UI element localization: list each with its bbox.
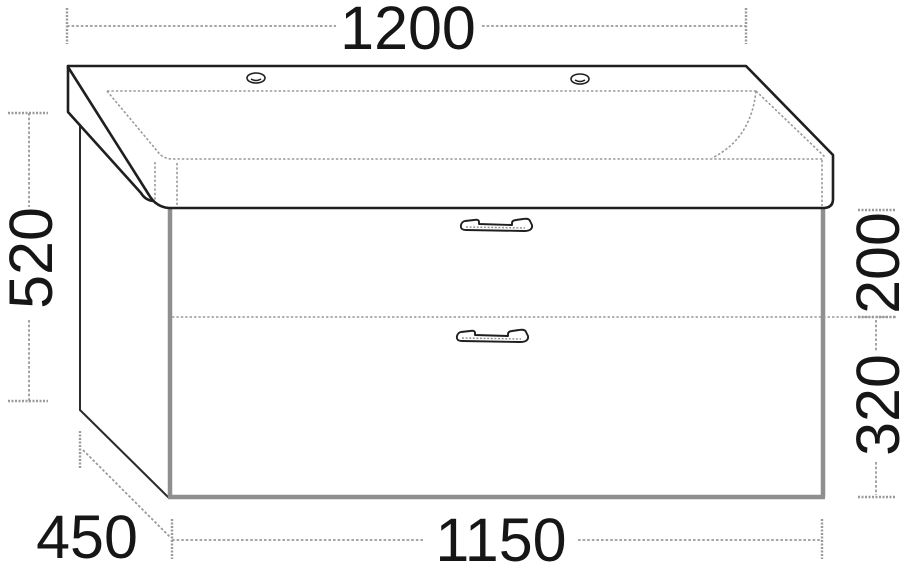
vanity-cabinet — [80, 125, 896, 497]
faucet-hole-icon — [571, 74, 589, 84]
basin-hidden-edges — [155, 160, 822, 206]
technical-drawing: 1200 520 200 320 450 1150 — [0, 0, 918, 580]
basin-outline — [68, 66, 833, 208]
dimension-depth: 450 — [36, 431, 170, 571]
washbasin — [68, 66, 833, 208]
dimension-label-depth: 450 — [36, 503, 138, 571]
basin-bowl-curve — [712, 91, 756, 158]
drawer-handle-icon — [461, 219, 532, 231]
dimension-label-bottom-drawer-height: 320 — [844, 354, 912, 456]
faucet-hole-icon — [247, 73, 265, 83]
dimension-label-cabinet-width: 1150 — [435, 506, 566, 574]
dimension-cabinet-width: 1150 — [172, 506, 822, 574]
dimension-basin-width: 1200 — [67, 0, 746, 62]
dimension-label-top-drawer-height: 200 — [844, 212, 912, 314]
cabinet-bottom-left-edge — [80, 410, 168, 497]
dimension-label-unit-height: 520 — [0, 207, 65, 309]
dimension-bottom-drawer-height: 320 — [844, 320, 912, 497]
drawer-handle-icon — [457, 330, 528, 342]
dimension-unit-height: 520 — [0, 113, 65, 403]
basin-inner-right-edge — [756, 91, 826, 158]
basin-inner-rim-lower — [107, 91, 824, 159]
dimension-top-drawer-height: 200 — [844, 210, 912, 317]
dimension-label-basin-width: 1200 — [340, 0, 476, 62]
